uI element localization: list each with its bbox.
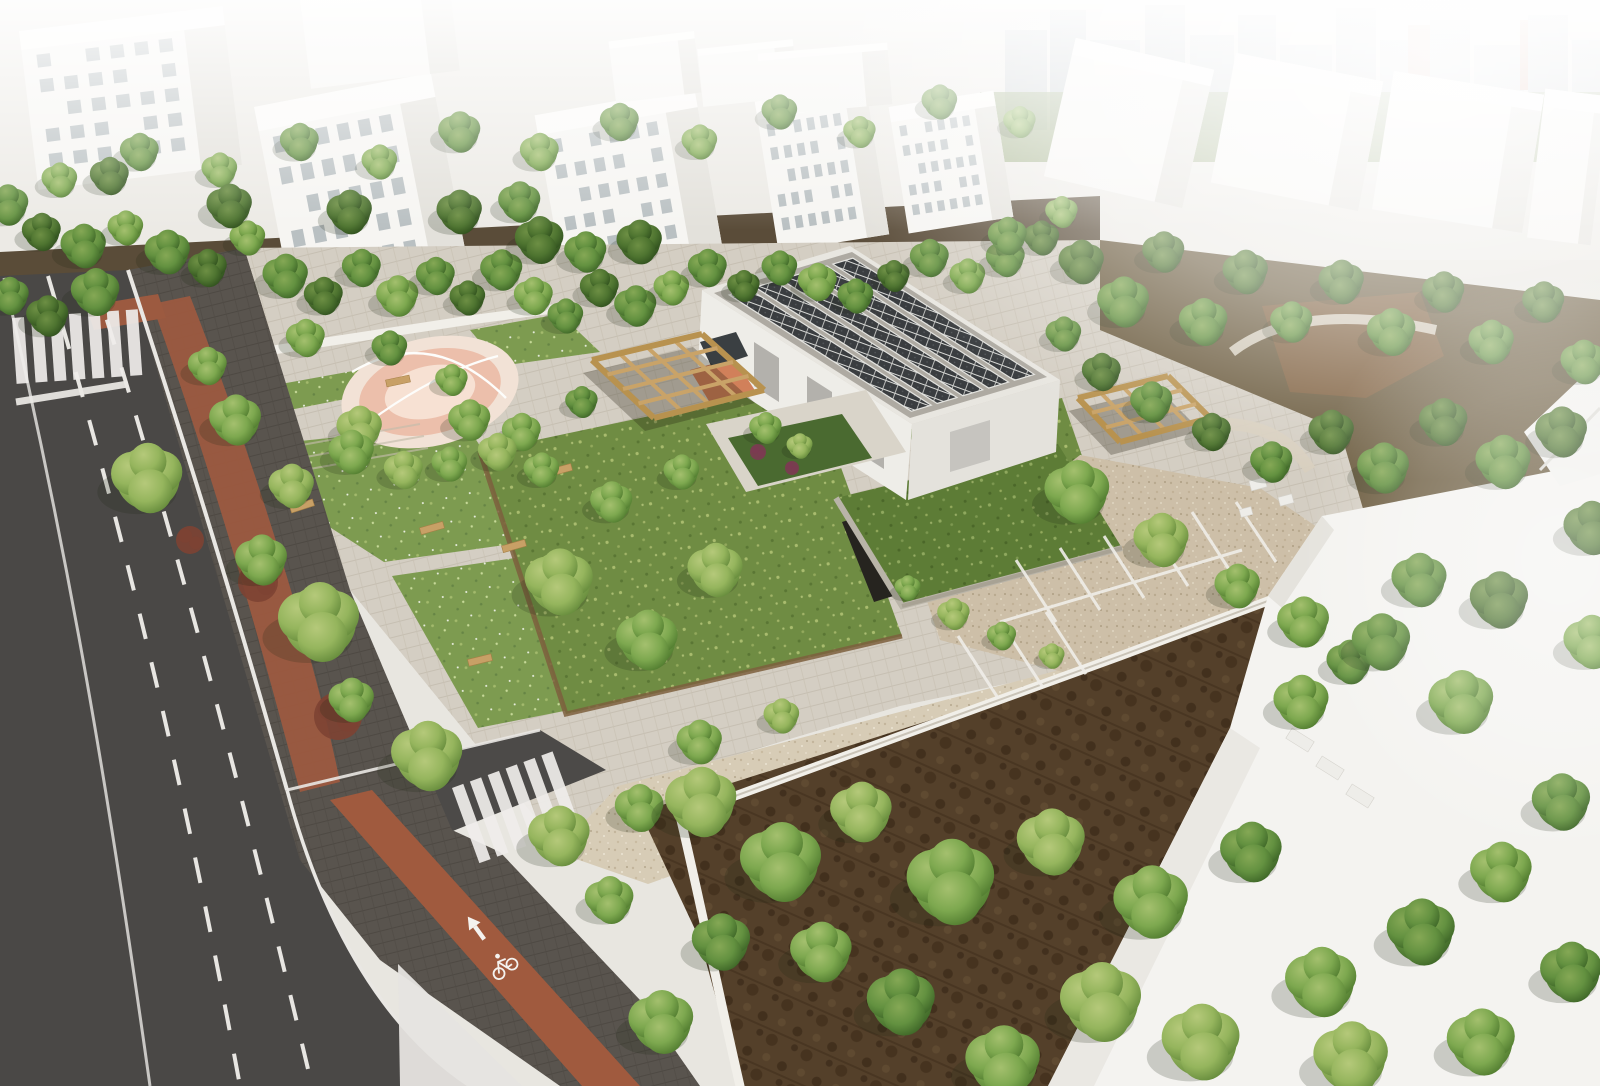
tree-canopy	[408, 747, 452, 791]
tree-canopy	[238, 234, 260, 256]
tree-canopy	[735, 282, 755, 302]
shrub-patch	[750, 444, 766, 460]
tree-canopy	[425, 271, 449, 295]
tree-canopy	[573, 398, 593, 418]
tree-canopy	[760, 852, 810, 902]
tree-canopy	[1555, 964, 1593, 1002]
tree-canopy	[71, 240, 99, 268]
tree-canopy	[386, 291, 412, 317]
tree-canopy	[380, 344, 402, 366]
tree-canopy	[440, 460, 462, 482]
tree-canopy	[313, 291, 337, 315]
tree-canopy	[772, 712, 794, 734]
tree-canopy	[248, 554, 280, 586]
tree-canopy	[1147, 533, 1181, 567]
tree-canopy	[1131, 893, 1177, 939]
tree-canopy	[339, 446, 367, 474]
tree-canopy	[1403, 924, 1445, 966]
tree-canopy	[295, 333, 319, 357]
shrub-patch	[176, 526, 204, 554]
tree-canopy	[1045, 653, 1061, 669]
aerial-render-canvas	[0, 0, 1600, 1086]
tree-canopy	[624, 301, 650, 327]
tree-canopy	[994, 632, 1012, 650]
tree-canopy	[541, 574, 583, 616]
tree-canopy	[1080, 992, 1130, 1042]
tree	[576, 876, 634, 925]
shrub	[758, 450, 765, 457]
tree-canopy	[1225, 580, 1253, 608]
tree-canopy	[31, 227, 55, 251]
tree-canopy	[523, 291, 547, 315]
tree-canopy	[527, 234, 557, 264]
tree-canopy	[1485, 864, 1523, 902]
shrub-patch	[785, 461, 799, 475]
tree-canopy	[687, 736, 715, 764]
tree-canopy	[351, 263, 375, 287]
tree-canopy	[279, 480, 307, 508]
tree-canopy	[1463, 1034, 1505, 1076]
tree-canopy	[222, 414, 254, 446]
tree-canopy	[631, 632, 669, 670]
site-rendering	[0, 0, 1600, 1086]
tree-canopy	[807, 277, 831, 301]
tree-canopy	[697, 263, 721, 287]
tree-canopy	[805, 944, 843, 982]
tree-canopy	[197, 263, 221, 287]
tree-canopy	[0, 291, 23, 315]
tree-canopy	[128, 469, 172, 513]
tree-canopy	[662, 284, 684, 306]
tree-canopy	[770, 264, 792, 286]
tree-canopy	[701, 563, 735, 597]
tree-canopy	[928, 871, 982, 925]
tree-canopy	[574, 247, 600, 273]
tree-canopy	[1180, 1032, 1228, 1080]
tree-canopy	[543, 828, 581, 866]
tree-canopy	[490, 265, 516, 291]
tree-canopy	[36, 311, 62, 337]
tree-canopy	[793, 443, 809, 459]
tree-canopy	[556, 312, 578, 334]
tree-canopy	[672, 468, 694, 490]
tree-canopy	[532, 466, 554, 488]
tree-canopy	[273, 270, 301, 298]
shrub	[792, 466, 798, 472]
tree-canopy	[627, 236, 655, 264]
tree	[681, 913, 750, 971]
tree-canopy	[393, 465, 417, 489]
tree-canopy	[757, 424, 777, 444]
tree-canopy	[1235, 844, 1273, 882]
tree-canopy	[458, 294, 480, 316]
tree-canopy	[846, 292, 868, 314]
tree-canopy	[298, 612, 348, 662]
tree-canopy	[597, 894, 627, 924]
tree-canopy	[1287, 695, 1321, 729]
tree-canopy	[682, 793, 726, 837]
shrub	[189, 537, 202, 550]
tree-canopy	[487, 447, 511, 471]
tree-canopy	[706, 935, 742, 971]
tree-canopy	[1033, 834, 1075, 876]
tree-canopy	[339, 694, 367, 722]
tree-canopy	[197, 361, 221, 385]
tree-canopy	[1302, 973, 1346, 1017]
tree-canopy	[845, 804, 883, 842]
tree-canopy	[443, 376, 463, 396]
tree-canopy	[458, 415, 484, 441]
tree-canopy	[589, 283, 613, 307]
tree-canopy	[945, 610, 965, 630]
tree-canopy	[155, 246, 183, 274]
tree-canopy	[901, 585, 917, 601]
tree-canopy	[883, 994, 925, 1036]
tree-canopy	[644, 1014, 684, 1054]
tree-canopy	[600, 497, 626, 523]
tree-canopy	[1060, 484, 1100, 524]
tree-canopy	[83, 286, 113, 316]
